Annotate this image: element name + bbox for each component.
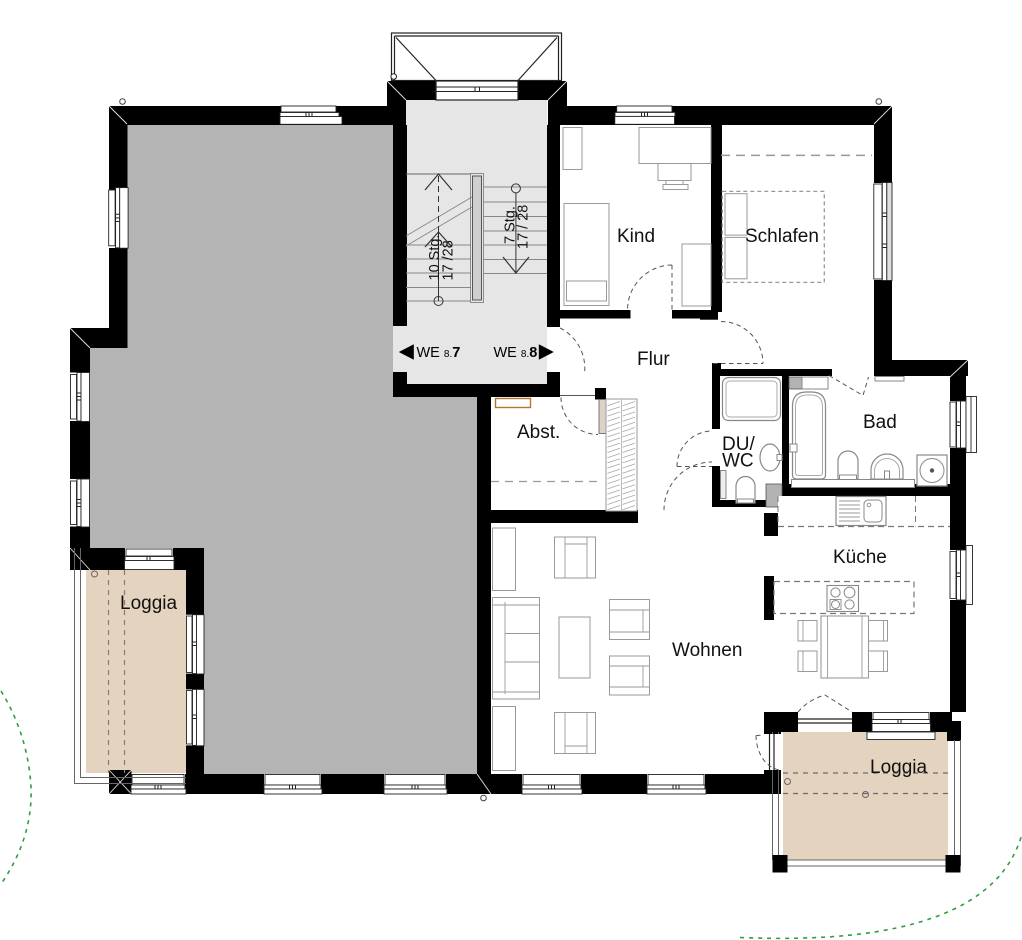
svg-text:Loggia: Loggia <box>120 593 177 614</box>
svg-text:WE 8.7: WE 8.7 <box>417 345 461 361</box>
svg-text:WE 8.8: WE 8.8 <box>494 345 538 361</box>
svg-text:WC: WC <box>722 451 754 472</box>
svg-text:Wohnen: Wohnen <box>672 640 742 661</box>
svg-text:Schlafen: Schlafen <box>745 226 819 247</box>
svg-text:Loggia: Loggia <box>870 757 927 778</box>
svg-text:17 /28: 17 /28 <box>441 240 457 280</box>
svg-text:Bad: Bad <box>863 412 897 433</box>
svg-text:17 / 28: 17 / 28 <box>516 205 532 249</box>
svg-text:Küche: Küche <box>833 547 887 568</box>
svg-text:Flur: Flur <box>637 349 670 370</box>
svg-text:Kind: Kind <box>617 226 655 247</box>
svg-text:Abst.: Abst. <box>517 422 560 443</box>
